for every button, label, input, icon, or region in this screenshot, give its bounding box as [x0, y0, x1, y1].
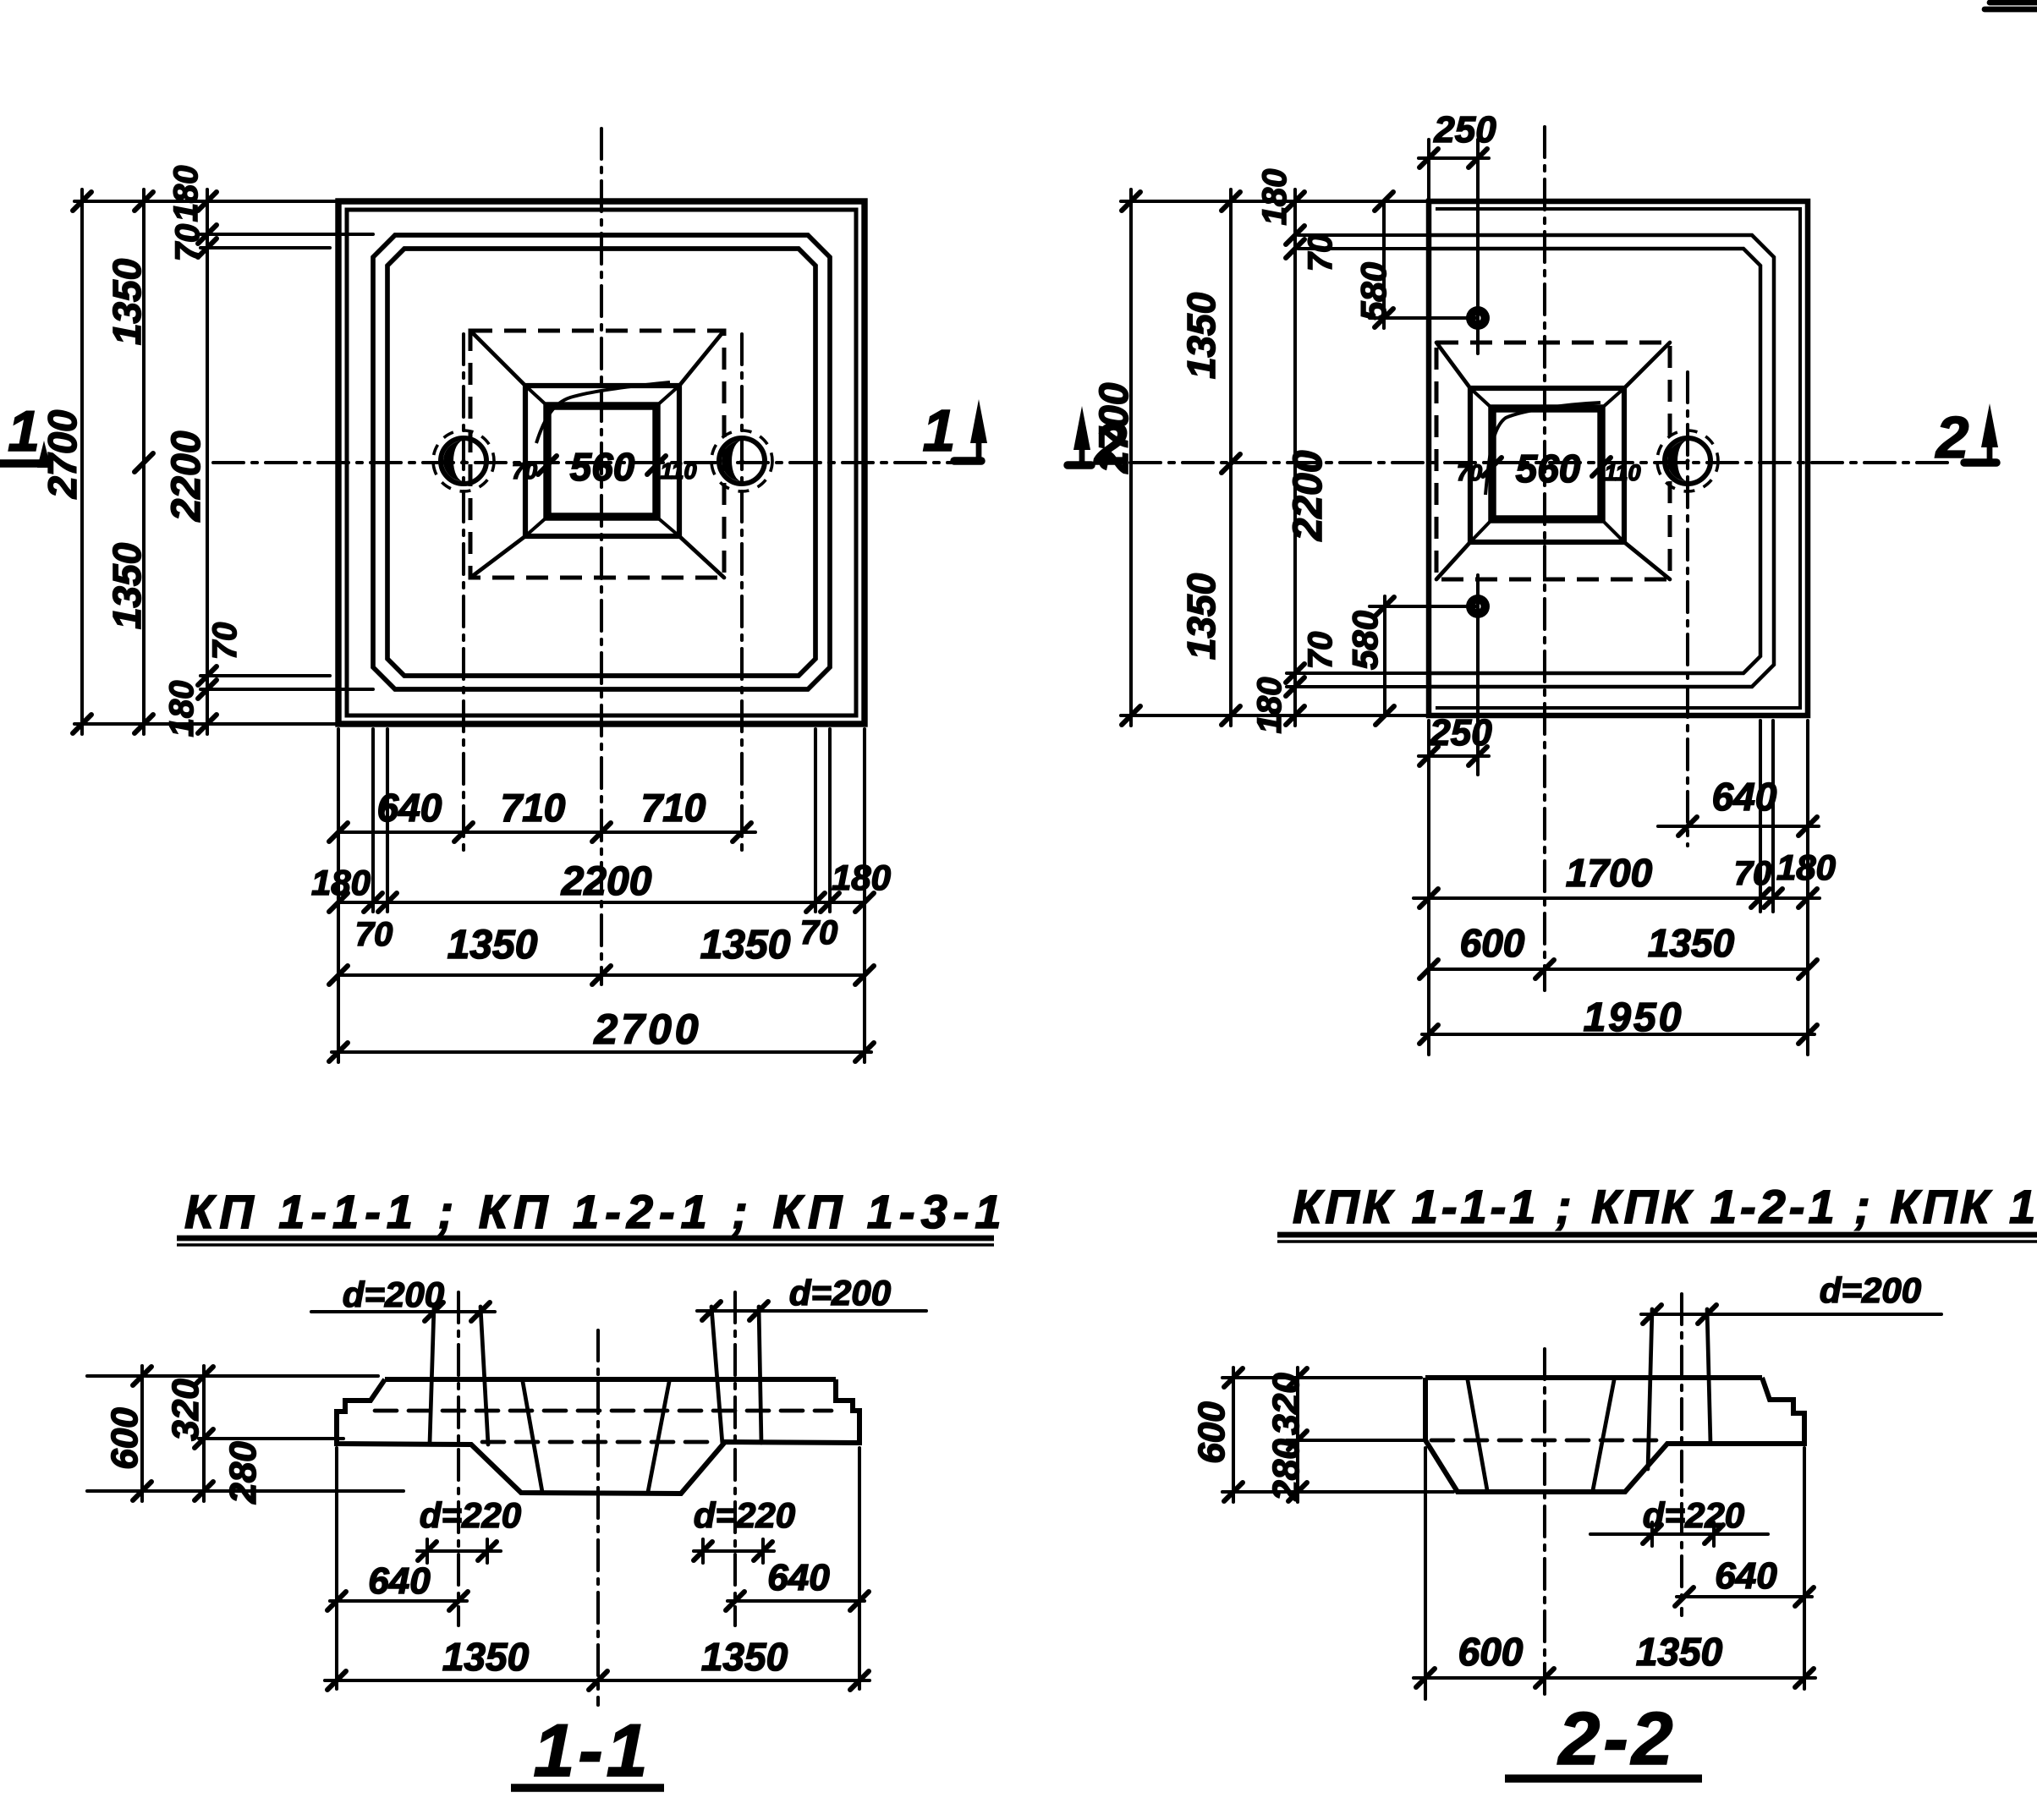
svg-text:1350: 1350: [105, 542, 149, 629]
svg-text:1-1: 1-1: [533, 1708, 651, 1792]
svg-text:250: 250: [1429, 712, 1492, 754]
svg-text:КП 1-1-1 ; КП 1-2-1 ; КП 1-3-: КП 1-1-1 ; КП 1-2-1 ; КП 1-3-1: [184, 1185, 1008, 1238]
svg-text:320: 320: [165, 1379, 206, 1441]
svg-text:180: 180: [1251, 677, 1288, 734]
svg-text:1350: 1350: [447, 923, 538, 968]
svg-text:180: 180: [1256, 169, 1293, 226]
svg-text:250: 250: [1433, 109, 1496, 151]
svg-text:180: 180: [163, 681, 200, 737]
svg-text:600: 600: [1458, 1630, 1524, 1674]
svg-text:d=220: d=220: [694, 1495, 795, 1535]
svg-text:710: 710: [641, 786, 706, 830]
svg-text:2200: 2200: [164, 430, 209, 522]
svg-text:70: 70: [206, 622, 244, 661]
svg-text:70: 70: [800, 914, 838, 951]
svg-text:1350: 1350: [1648, 921, 1735, 965]
svg-text:70: 70: [1302, 234, 1339, 272]
svg-text:d=220: d=220: [420, 1495, 521, 1535]
svg-text:2: 2: [1093, 411, 1128, 477]
svg-text:70: 70: [1734, 855, 1772, 892]
svg-text:2700: 2700: [593, 1006, 701, 1053]
svg-text:180: 180: [311, 863, 371, 902]
svg-text:560: 560: [1516, 447, 1581, 491]
svg-text:d=200: d=200: [1820, 1270, 1921, 1310]
svg-text:1350: 1350: [1179, 573, 1223, 660]
svg-text:70: 70: [355, 916, 393, 953]
svg-text:1: 1: [8, 399, 40, 463]
svg-text:1350: 1350: [1179, 292, 1223, 379]
svg-text:2: 2: [1935, 404, 1969, 470]
svg-text:2200: 2200: [561, 859, 652, 904]
svg-text:580: 580: [1345, 611, 1385, 670]
svg-text:280: 280: [222, 1441, 264, 1505]
svg-text:1: 1: [923, 397, 956, 463]
svg-text:КПК 1-1-1 ; КПК 1-2-1 ; КПК 1-: КПК 1-1-1 ; КПК 1-2-1 ; КПК 1-3-1: [1293, 1180, 2037, 1233]
svg-text:180: 180: [832, 858, 891, 897]
svg-text:600: 600: [1191, 1401, 1233, 1464]
svg-text:280: 280: [1266, 1439, 1307, 1502]
svg-text:600: 600: [1460, 921, 1525, 965]
svg-text:180: 180: [1776, 847, 1836, 887]
svg-text:320: 320: [1266, 1373, 1307, 1435]
svg-text:640: 640: [368, 1560, 431, 1602]
svg-text:2200: 2200: [1286, 450, 1331, 541]
svg-text:d=200: d=200: [343, 1275, 444, 1314]
svg-text:1350: 1350: [105, 258, 149, 345]
svg-text:1700: 1700: [1566, 851, 1653, 895]
svg-text:2-2: 2-2: [1557, 1697, 1676, 1780]
svg-text:d=200: d=200: [789, 1273, 891, 1313]
svg-text:1350: 1350: [701, 1635, 788, 1679]
svg-text:640: 640: [377, 786, 442, 830]
svg-text:180: 180: [167, 166, 205, 222]
svg-text:600: 600: [104, 1407, 145, 1470]
svg-text:1350: 1350: [1636, 1630, 1723, 1674]
svg-text:710: 710: [501, 786, 566, 830]
svg-text:70: 70: [169, 224, 206, 262]
svg-text:640: 640: [1715, 1555, 1777, 1597]
svg-text:640: 640: [1712, 775, 1777, 819]
svg-text:580: 580: [1353, 262, 1393, 321]
svg-text:1950: 1950: [1584, 995, 1684, 1040]
svg-text:1350: 1350: [442, 1635, 530, 1679]
svg-text:640: 640: [767, 1557, 830, 1598]
svg-text:1350: 1350: [700, 923, 791, 968]
svg-text:70: 70: [1302, 632, 1339, 670]
